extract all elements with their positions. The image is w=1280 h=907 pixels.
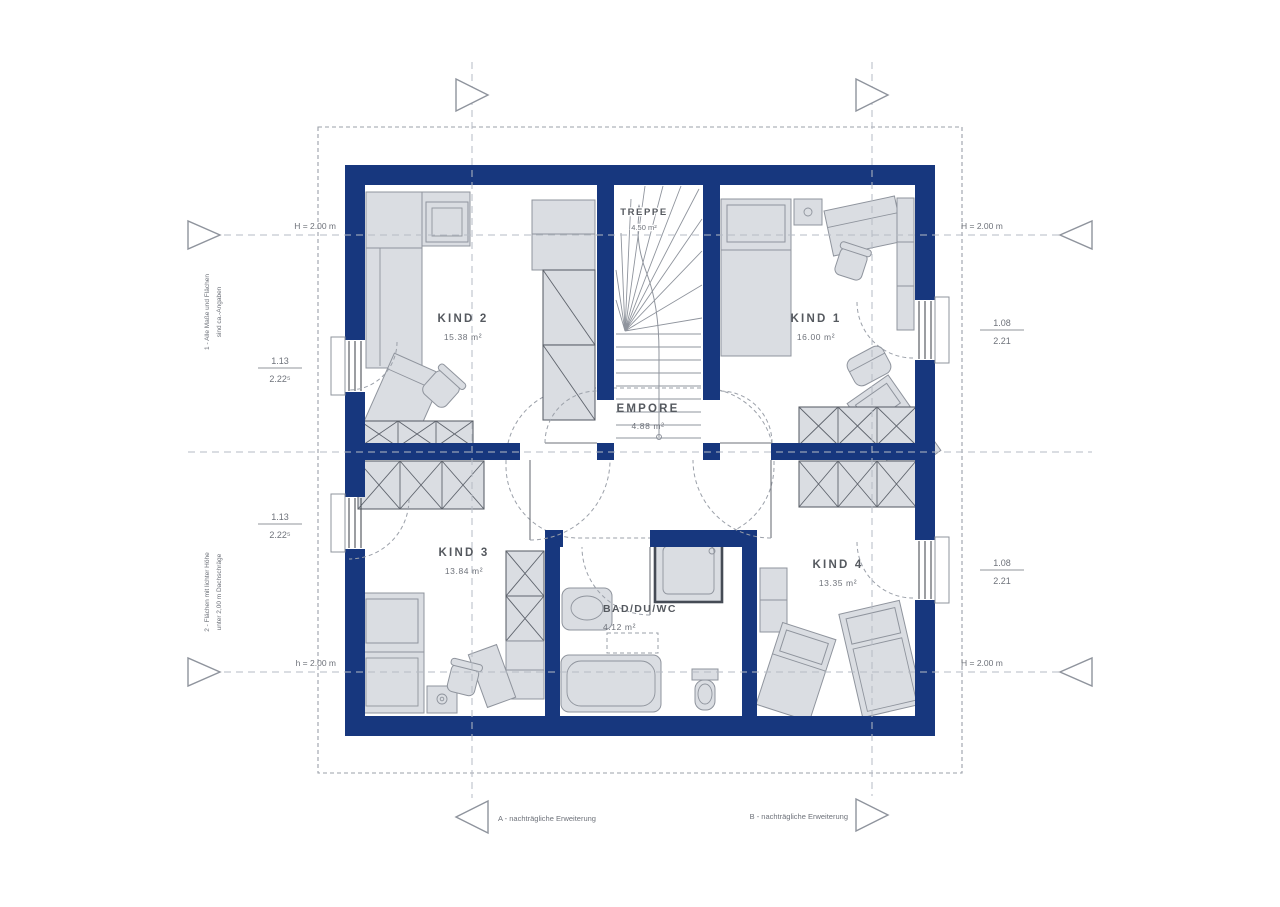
dim-left-upper: 1.13 2.22⁵ <box>258 356 302 384</box>
wall-stair-left <box>597 185 614 400</box>
svg-text:unter 2,00 m Dachschräge: unter 2,00 m Dachschräge <box>216 553 223 630</box>
wardrobe <box>543 270 595 420</box>
wall-left-a <box>345 165 365 340</box>
height-label-top-left: H = 2.00 m <box>294 221 336 231</box>
washer-placeholder <box>607 633 658 653</box>
height-marker-left-top <box>188 221 220 249</box>
svg-text:1 - Alle Maße und Flächen: 1 - Alle Maße und Flächen <box>204 274 211 350</box>
label-kind2: KIND 2 <box>438 313 489 325</box>
dim-right-upper: 1.08 2.21 <box>980 318 1024 346</box>
section-marker-top-right <box>856 79 888 111</box>
bathtub <box>561 655 661 712</box>
wall-right-a <box>915 165 935 300</box>
area-bad: 4.12 m² <box>603 622 636 632</box>
area-kind4: 13.35 m² <box>819 578 857 588</box>
note-upper: 1 - Alle Maße und Flächen sind ca.-Angab… <box>204 274 223 350</box>
door-kind4 <box>693 460 771 538</box>
wall-bath-right <box>742 530 757 716</box>
svg-text:2.22⁵: 2.22⁵ <box>269 374 291 384</box>
wall-bath-top <box>650 530 757 547</box>
floor-plan-screenshot: KIND 2 15.38 m² KIND 1 16.00 m² KIND 3 1… <box>0 0 1280 907</box>
svg-text:1.08: 1.08 <box>993 558 1011 568</box>
wardrobe-hatch <box>358 461 484 509</box>
svg-text:2.22⁵: 2.22⁵ <box>269 530 291 540</box>
label-kind4: KIND 4 <box>813 559 864 571</box>
wall-top <box>345 165 935 185</box>
desk <box>824 196 904 256</box>
svg-text:sind ca.-Angaben: sind ca.-Angaben <box>216 286 223 337</box>
wall-left-c <box>345 549 365 736</box>
svg-text:1.08: 1.08 <box>993 318 1011 328</box>
door-kind1 <box>720 391 772 443</box>
extension-labels: A - nachträgliche Erweiterung B - nachtr… <box>498 812 848 823</box>
height-label-bottom-left: h = 2.00 m <box>296 658 336 668</box>
label-treppe: TREPPE <box>620 207 668 218</box>
svg-text:1.13: 1.13 <box>271 356 289 366</box>
dim-left-lower: 1.13 2.22⁵ <box>258 512 302 540</box>
furniture-kind4 <box>756 461 923 722</box>
dim-right-lower: 1.08 2.21 <box>980 558 1024 586</box>
height-marker-right-bottom <box>1060 658 1092 686</box>
area-kind2: 15.38 m² <box>444 332 482 342</box>
wall-bottom <box>345 716 935 736</box>
bed-angled-2 <box>839 600 923 717</box>
area-treppe: 4.50 m² <box>631 223 657 232</box>
label-bad: BAD/DU/WC <box>603 603 677 615</box>
extension-a-label: A - nachträgliche Erweiterung <box>498 814 596 823</box>
svg-text:2.21: 2.21 <box>993 336 1011 346</box>
extension-b-label: B - nachträgliche Erweiterung <box>750 812 848 821</box>
area-empore: 4.88 m² <box>631 421 664 431</box>
label-kind3: KIND 3 <box>439 547 490 559</box>
wall-right-b <box>915 360 935 540</box>
area-kind1: 16.00 m² <box>797 332 835 342</box>
height-label-top-right: H = 2.00 m <box>961 221 1003 231</box>
height-marker-left-bottom <box>188 658 220 686</box>
side-notes: 1 - Alle Maße und Flächen sind ca.-Angab… <box>204 274 223 632</box>
tall-cabinet-hatch <box>506 551 544 699</box>
height-label-bottom-right: H = 2.00 m <box>961 658 1003 668</box>
wall-right-c <box>915 600 935 736</box>
sideboard-hatch <box>799 461 916 507</box>
section-marker-bottom-right <box>856 799 888 831</box>
section-marker-bottom-left <box>456 801 488 833</box>
wall-bath-left <box>545 530 560 716</box>
section-marker-top-left <box>456 79 488 111</box>
window-right-lower <box>857 537 949 603</box>
label-kind1: KIND 1 <box>791 313 842 325</box>
shower <box>655 538 722 602</box>
furniture-bath <box>561 538 722 712</box>
sideboard-hatch <box>799 407 916 445</box>
stairs <box>616 186 702 440</box>
svg-text:2 - Flächen mit lichter Höhe: 2 - Flächen mit lichter Höhe <box>204 552 211 632</box>
floor-plan-drawing: KIND 2 15.38 m² KIND 1 16.00 m² KIND 3 1… <box>0 0 1280 907</box>
furniture-kind3 <box>358 461 544 713</box>
svg-text:1.13: 1.13 <box>271 512 289 522</box>
area-kind3: 13.84 m² <box>445 566 483 576</box>
label-empore: EMPORE <box>616 403 679 415</box>
svg-text:2.21: 2.21 <box>993 576 1011 586</box>
note-lower: 2 - Flächen mit lichter Höhe unter 2,00 … <box>204 552 223 632</box>
height-marker-right-top <box>1060 221 1092 249</box>
wall-stair-right <box>703 185 720 400</box>
wc <box>692 669 718 710</box>
wall-left-b <box>345 392 365 497</box>
door-kind3 <box>530 460 610 540</box>
